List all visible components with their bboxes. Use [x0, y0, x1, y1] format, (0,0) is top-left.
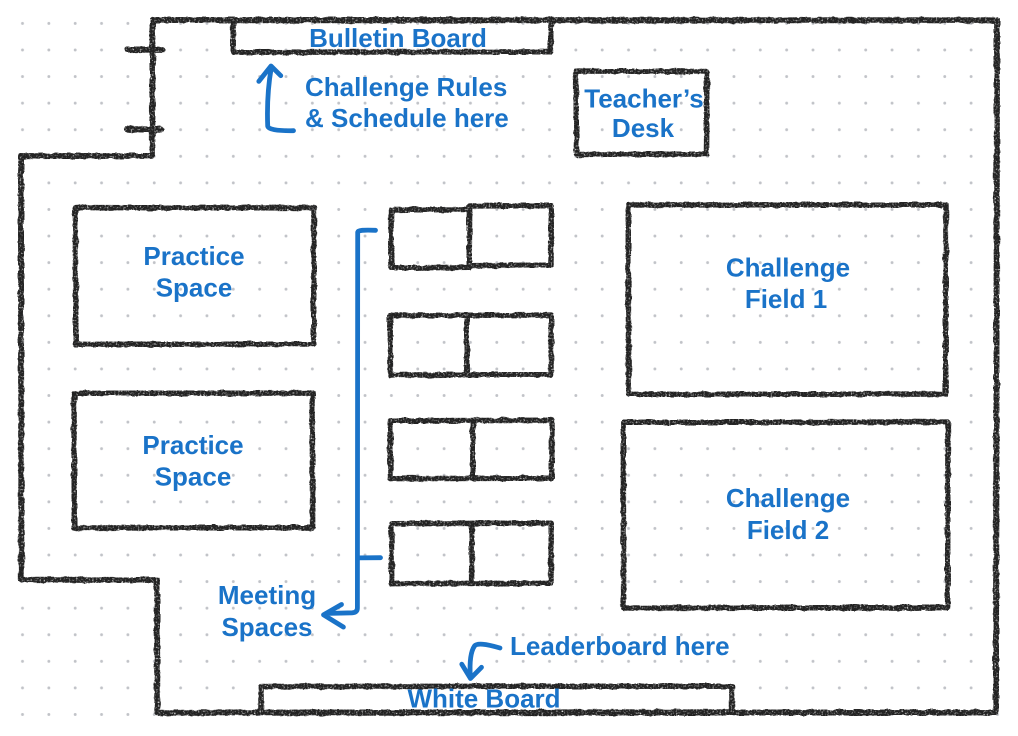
svg-text:Challenge: Challenge	[726, 483, 850, 513]
svg-text:Challenge: Challenge	[726, 253, 850, 283]
svg-text:Field 2: Field 2	[747, 515, 829, 545]
svg-text:Bulletin Board: Bulletin Board	[309, 23, 487, 53]
svg-text:Practice: Practice	[142, 430, 243, 460]
svg-text:Spaces: Spaces	[221, 612, 312, 642]
svg-text:Field 1: Field 1	[745, 284, 827, 314]
svg-text:Practice: Practice	[143, 241, 244, 271]
svg-text:& Schedule here: & Schedule here	[305, 103, 509, 133]
svg-text:Desk: Desk	[612, 113, 675, 143]
svg-text:Challenge Rules: Challenge Rules	[305, 72, 507, 102]
svg-text:White Board: White Board	[407, 684, 560, 714]
svg-text:Meeting: Meeting	[218, 580, 316, 610]
svg-text:Leaderboard here: Leaderboard here	[510, 631, 730, 661]
svg-text:Teacher’s: Teacher’s	[584, 84, 703, 114]
svg-text:Space: Space	[155, 462, 232, 492]
svg-text:Space: Space	[156, 273, 233, 303]
